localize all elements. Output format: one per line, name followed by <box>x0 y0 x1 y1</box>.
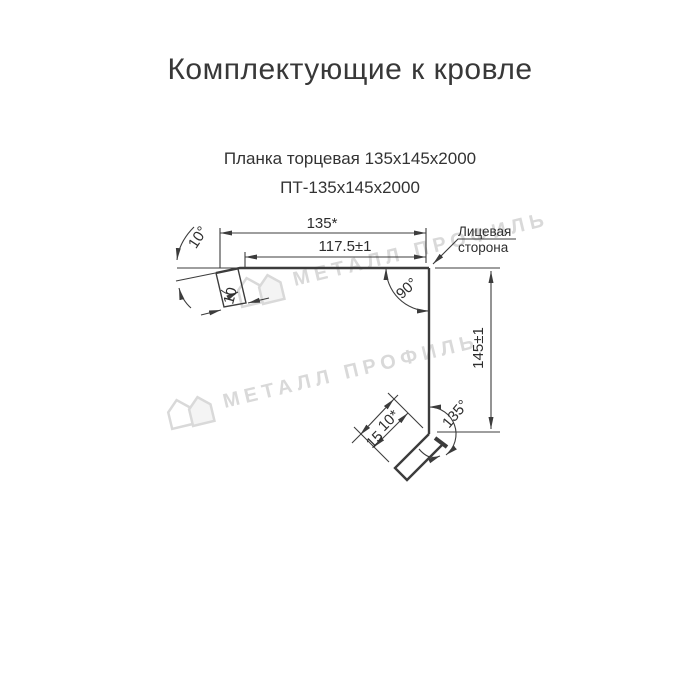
dimension-line-hem-10 <box>201 310 221 315</box>
angle-label-135: 135° <box>439 397 472 432</box>
technical-drawing: 135* 117.5±1 90° 145±1 135° 10° 10 10* 1… <box>0 0 700 700</box>
dimension-line-hem-10 <box>248 298 269 303</box>
dim-label-135: 135* <box>307 215 338 232</box>
dimension-labels: 135* 117.5±1 90° 145±1 135° 10° 10 10* 1… <box>185 215 511 452</box>
page-canvas: Комплектующие к кровле Планка торцевая 1… <box>0 0 700 700</box>
dim-label-117-5: 117.5±1 <box>319 238 372 255</box>
angle-label-90: 90° <box>393 275 421 303</box>
dimension-annotations <box>176 227 516 462</box>
angle-label-10: 10° <box>185 223 212 251</box>
profile-top-flange <box>216 268 429 273</box>
angle-arc-10-lower <box>179 288 191 308</box>
extension-line <box>176 268 240 281</box>
dimension-overshoot <box>352 435 360 443</box>
profile-outline <box>216 268 447 480</box>
dimension-overshoot <box>394 395 398 399</box>
face-side-label-line2: сторона <box>458 240 509 255</box>
dim-label-hem-10star: 10* <box>375 407 403 435</box>
dim-label-145: 145±1 <box>470 327 487 369</box>
face-side-label-line1: Лицевая <box>458 224 511 239</box>
dim-label-hem-10: 10 <box>220 286 241 307</box>
